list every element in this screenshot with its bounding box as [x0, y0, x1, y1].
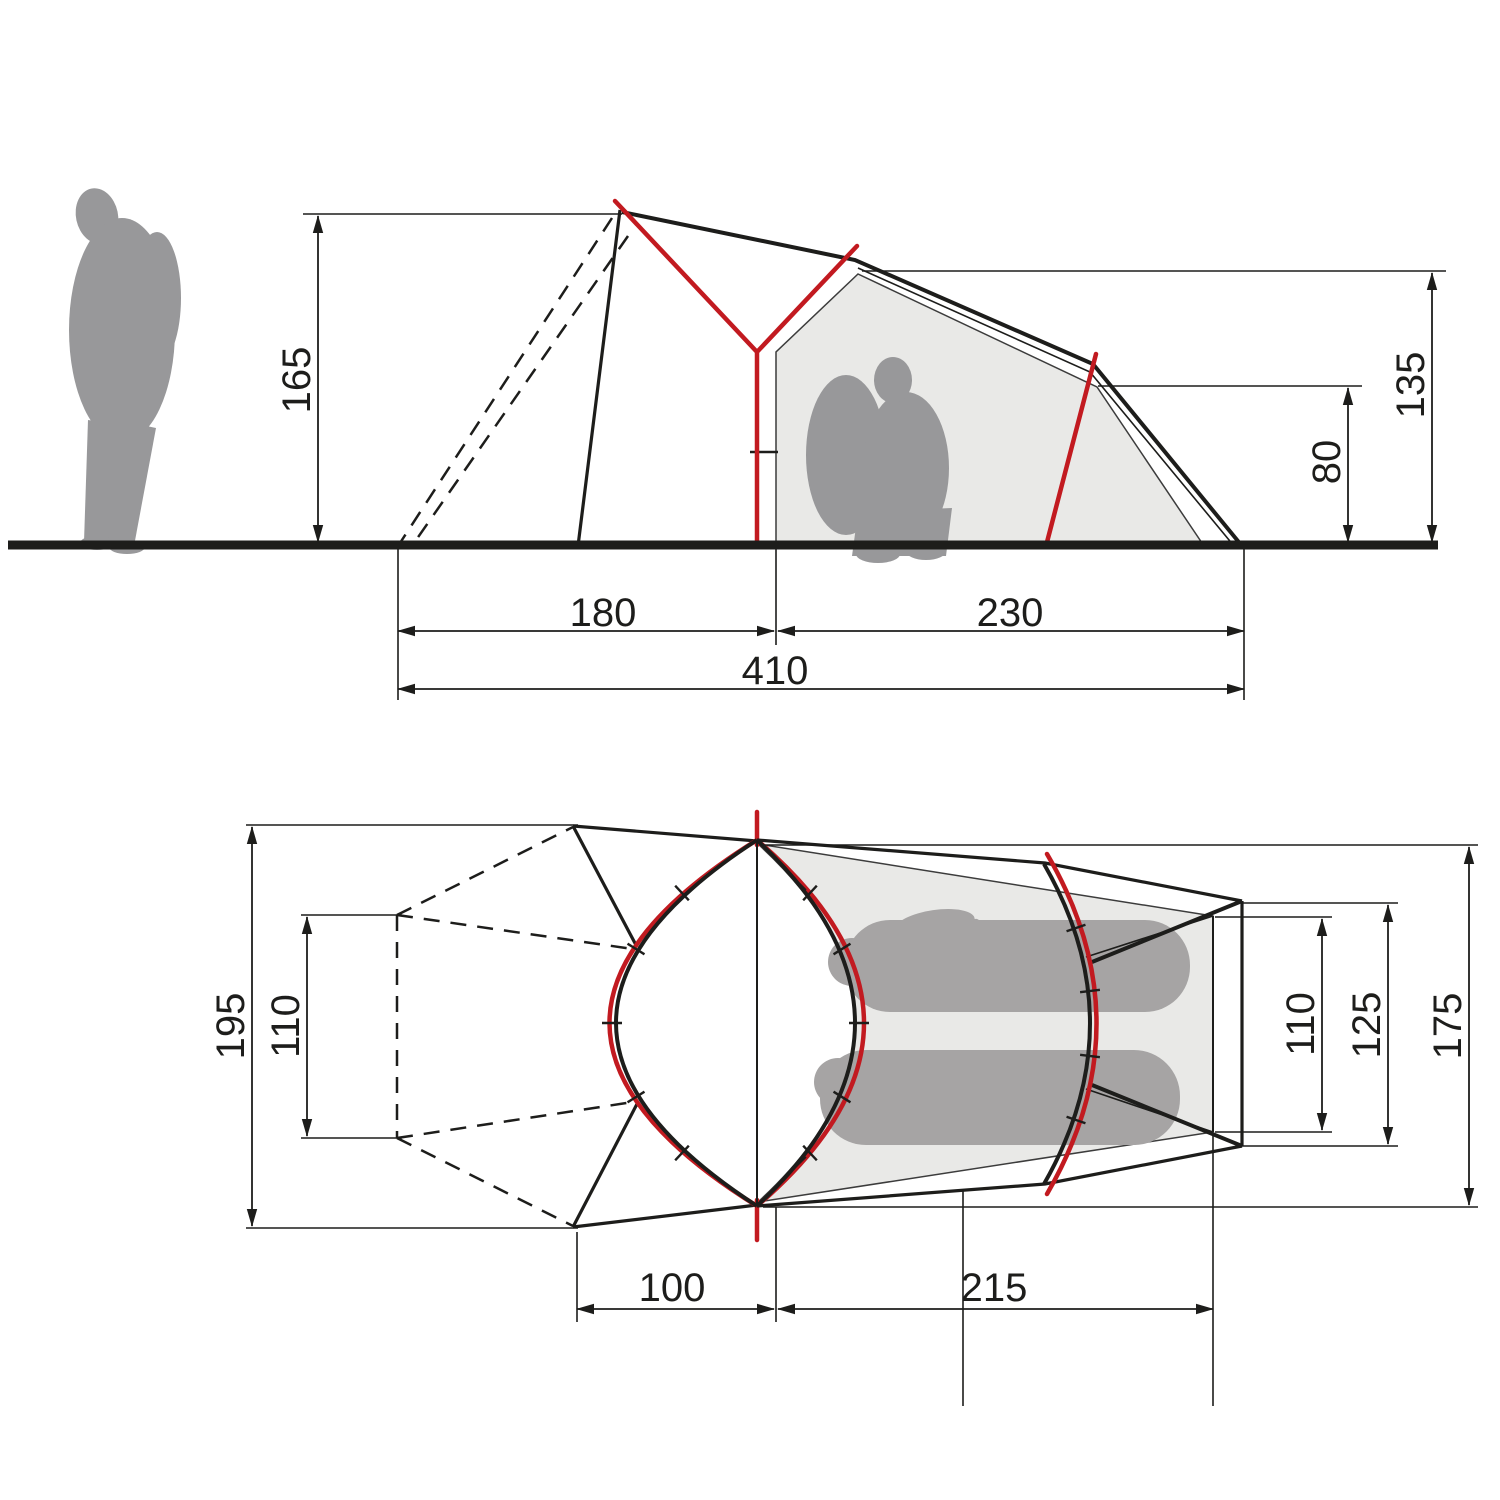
plan-guy-lines	[397, 827, 633, 1226]
vestibule-outline	[573, 826, 757, 1227]
guy-line-dashed	[397, 1102, 633, 1138]
dim-label-rear-height: 80	[1305, 440, 1349, 485]
guy-line-dashed	[397, 1138, 573, 1226]
front-pole-edge	[578, 210, 620, 546]
dim-label-rear-inner-width: 110	[1279, 992, 1323, 1056]
dim-label-inner-length: 230	[977, 591, 1044, 635]
vestibule-seam	[573, 826, 637, 947]
side-elevation-view: 165 135 80 180 230 410	[8, 184, 1446, 700]
tent-dimensions-diagram: 165 135 80 180 230 410	[0, 0, 1500, 1500]
dim-label-total-length: 410	[742, 649, 809, 693]
guy-lines	[400, 218, 628, 543]
person-body	[845, 920, 1190, 1012]
person-backpack	[133, 232, 181, 364]
guy-line-dashed	[414, 236, 628, 543]
door-arc-left	[616, 840, 757, 1206]
dim-label-vestibule-depth: 100	[639, 1266, 706, 1310]
dim-label-front-peak-height: 165	[275, 347, 319, 414]
inner-tent-floor	[758, 844, 1213, 1202]
dim-label-vestibule-length: 180	[570, 591, 637, 635]
guy-line-dashed	[397, 915, 633, 949]
dim-label-inner-floor-length: 215	[961, 1266, 1028, 1310]
vestibule-bottom-edge	[573, 1205, 757, 1227]
dim-label-front-entry-width: 110	[264, 994, 308, 1058]
dim-label-inner-peak-height: 135	[1389, 352, 1433, 419]
floor-plan-view: 195 110 110 125 175 100 215	[209, 812, 1478, 1406]
vestibule-seam	[573, 1104, 637, 1227]
dim-label-total-width: 195	[209, 993, 253, 1060]
person-hand	[1016, 1082, 1048, 1102]
vestibule-top-edge	[573, 826, 757, 841]
person-head	[874, 357, 912, 403]
dim-label-rear-outer-width: 125	[1345, 992, 1389, 1059]
tent-dimensions-page: 165 135 80 180 230 410	[0, 0, 1500, 1500]
dim-label-inner-max-width: 175	[1426, 993, 1470, 1060]
guy-line-dashed	[400, 218, 612, 543]
sleeping-person-top	[828, 905, 1190, 1012]
guy-line-dashed	[397, 827, 573, 915]
standing-person-silhouette	[69, 184, 181, 554]
